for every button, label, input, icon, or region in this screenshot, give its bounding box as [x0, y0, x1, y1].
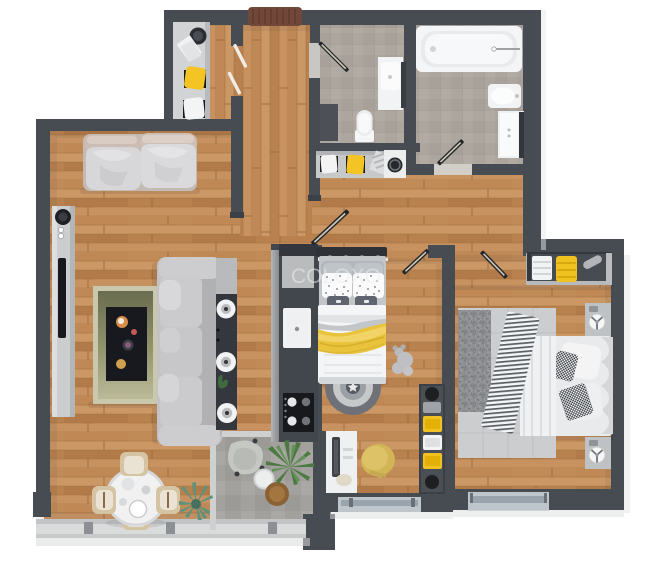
svg-text:COLOXO: COLOXO	[291, 265, 381, 288]
